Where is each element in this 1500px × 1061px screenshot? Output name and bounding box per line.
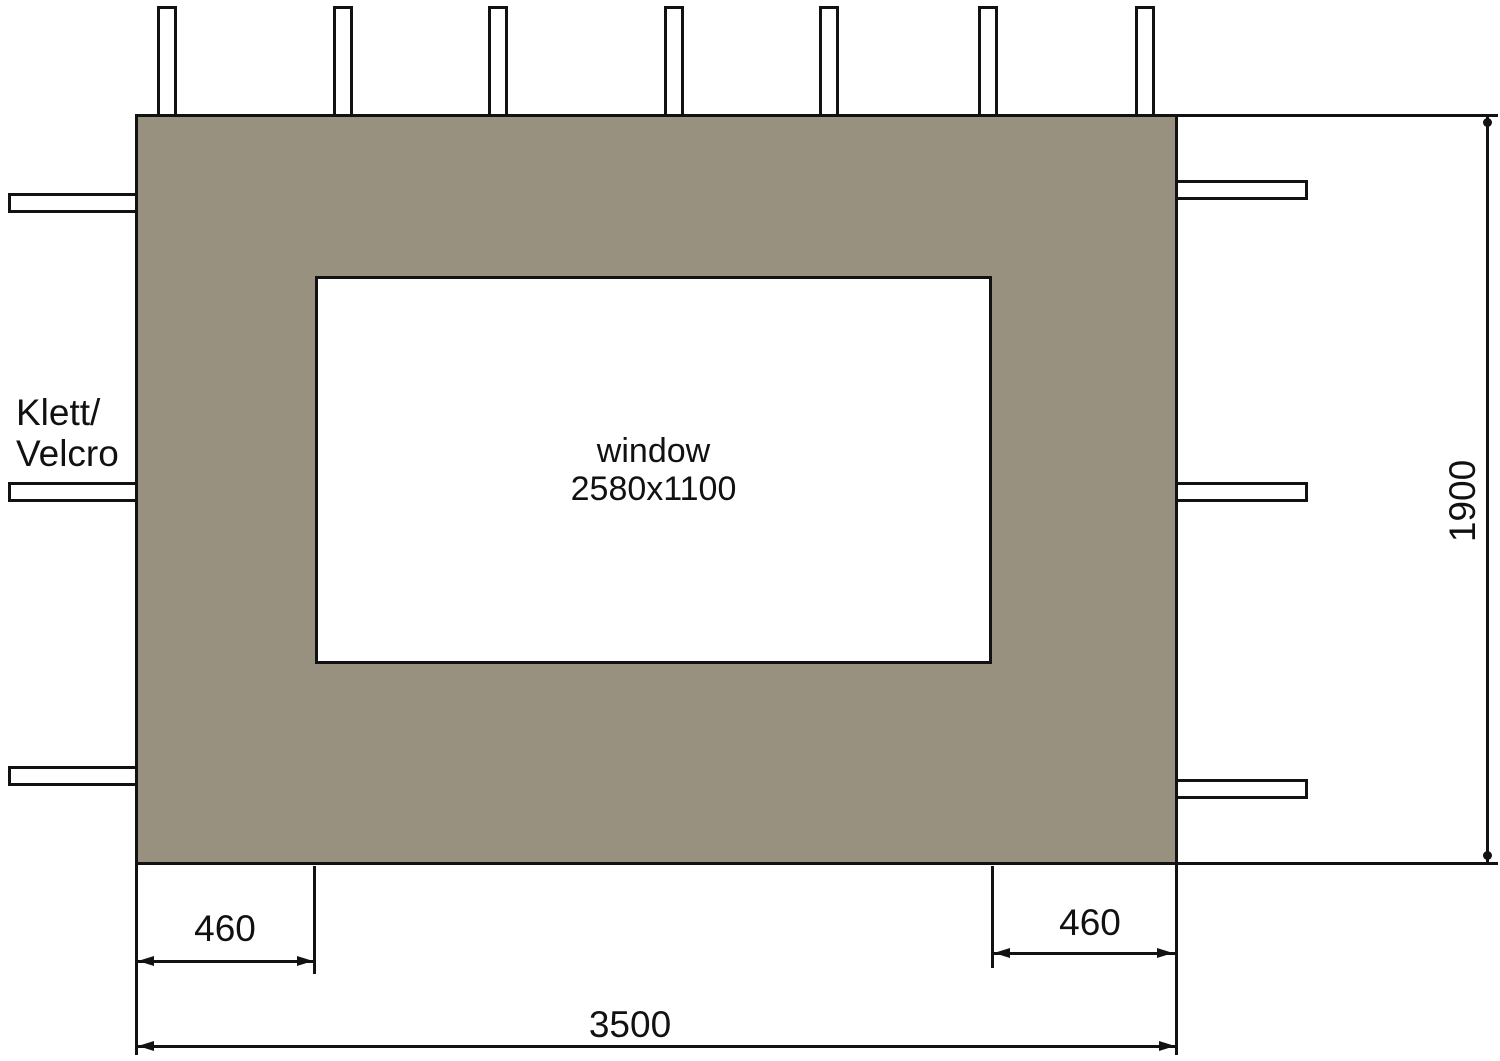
window-opening: window 2580x1100 <box>315 276 992 664</box>
extension-line-top-right <box>1178 114 1498 117</box>
arrowhead-left-icon <box>138 1041 154 1051</box>
velcro-strap-right-3 <box>1172 779 1308 799</box>
velcro-strap-left-2 <box>8 482 139 502</box>
velcro-strap-top-5 <box>819 6 839 120</box>
arrowhead-right-icon <box>1157 948 1173 958</box>
window-name-text: window <box>571 432 737 470</box>
velcro-strap-top-6 <box>978 6 998 120</box>
velcro-strap-left-1 <box>8 193 139 213</box>
gazebo-sidewall-diagram: window 2580x1100 Klett/ Velcro 1900 3500… <box>0 0 1500 1061</box>
dimension-line-height <box>1486 114 1489 865</box>
attachment-label-line2: Velcro <box>16 433 119 474</box>
window-label: window 2580x1100 <box>571 432 737 508</box>
dimension-dot-bottom <box>1483 851 1492 860</box>
dimension-dot-top <box>1483 118 1492 127</box>
left-offset-dimension-label: 460 <box>155 908 295 950</box>
arrowhead-right-icon <box>1159 1041 1175 1051</box>
velcro-strap-left-3 <box>8 766 139 786</box>
attachment-label-line1: Klett/ <box>16 392 119 433</box>
velcro-strap-right-2 <box>1172 482 1308 502</box>
velcro-strap-top-7 <box>1135 6 1155 120</box>
height-dimension-label: 1900 <box>1443 441 1483 561</box>
width-dimension-label: 3500 <box>530 1004 730 1046</box>
arrowhead-left-icon <box>994 948 1010 958</box>
window-size-text: 2580x1100 <box>571 470 737 508</box>
right-offset-dimension-label: 460 <box>1020 902 1160 944</box>
extension-line-window-left <box>313 866 316 974</box>
arrowhead-left-icon <box>138 956 154 966</box>
dimension-line-left-offset <box>136 960 316 963</box>
extension-line-bottom-right <box>1178 862 1498 865</box>
attachment-label: Klett/ Velcro <box>16 392 119 474</box>
arrowhead-right-icon <box>297 956 313 966</box>
velcro-strap-top-4 <box>664 6 684 120</box>
velcro-strap-top-3 <box>488 6 508 120</box>
extension-line-bottom-right-corner <box>1175 865 1178 1055</box>
velcro-strap-top-1 <box>157 6 177 120</box>
velcro-strap-top-2 <box>333 6 353 120</box>
dimension-line-right-offset <box>992 952 1178 955</box>
velcro-strap-right-1 <box>1172 180 1308 200</box>
